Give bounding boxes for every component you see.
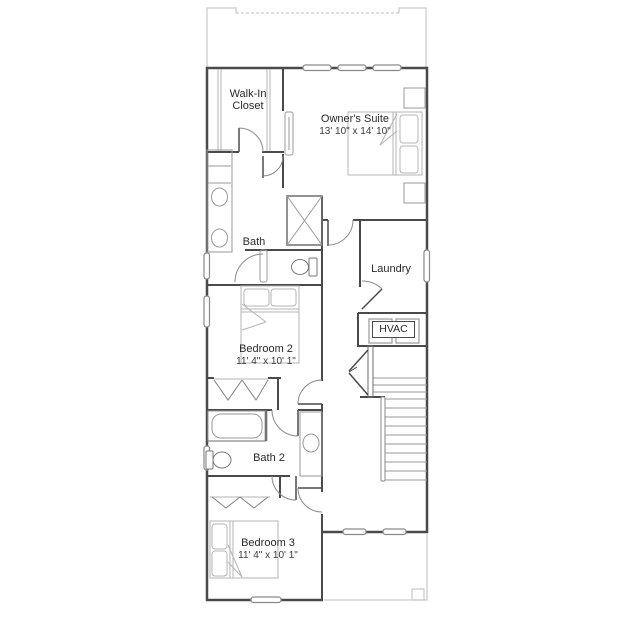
- room-label-walk-in-closet: Walk-In Closet: [217, 88, 279, 112]
- closet-door: [239, 128, 263, 152]
- bedroom-2-name: Bedroom 2: [216, 343, 316, 355]
- room-label-bath-2: Bath 2: [239, 452, 299, 464]
- laundry-door: [362, 281, 382, 309]
- hvac-label: HVAC: [372, 321, 415, 338]
- bedroom3-door: [298, 488, 322, 512]
- deck-outline: [207, 8, 426, 68]
- bedroom3-closet-bifold: [210, 497, 270, 508]
- owners-suite-dims: 13' 10" x 14' 10": [303, 125, 407, 138]
- vestibule-door: [272, 476, 296, 500]
- room-label-bedroom-2: Bedroom 2 11' 4" x 10' 1": [216, 343, 316, 368]
- room-label-bath: Bath: [229, 236, 279, 248]
- owners-suite-name: Owner's Suite: [303, 113, 407, 125]
- bath-entry-door: [263, 156, 283, 178]
- roof-outline: [324, 534, 427, 600]
- bedroom-2-dims: 11' 4" x 10' 1": [216, 355, 316, 368]
- bedroom-3-name: Bedroom 3: [218, 537, 318, 549]
- bedroom-3-dims: 11' 4" x 10' 1": [218, 549, 318, 562]
- owners-suite-door-panel: [285, 112, 293, 155]
- bedroom2-closet-bifold: [214, 379, 268, 400]
- bath-toilet: [292, 258, 318, 276]
- floor-plan-drawing: [0, 0, 639, 639]
- room-label-owners-suite: Owner's Suite 13' 10" x 14' 10": [303, 113, 407, 138]
- floor-plan: Walk-In Closet Owner's Suite 13' 10" x 1…: [0, 0, 639, 639]
- bath2-door: [272, 410, 298, 436]
- shower: [287, 196, 322, 245]
- staircase: [349, 346, 427, 481]
- room-label-laundry: Laundry: [363, 263, 419, 275]
- bath2-tub: [208, 411, 266, 441]
- owners-suite-door: [328, 220, 353, 246]
- bath2-vanity-sink: [300, 412, 322, 476]
- room-label-bedroom-3: Bedroom 3 11' 4" x 10' 1": [218, 537, 318, 562]
- bath2-toilet: [206, 451, 231, 469]
- bedroom2-door: [298, 380, 322, 404]
- wc-door: [235, 250, 267, 282]
